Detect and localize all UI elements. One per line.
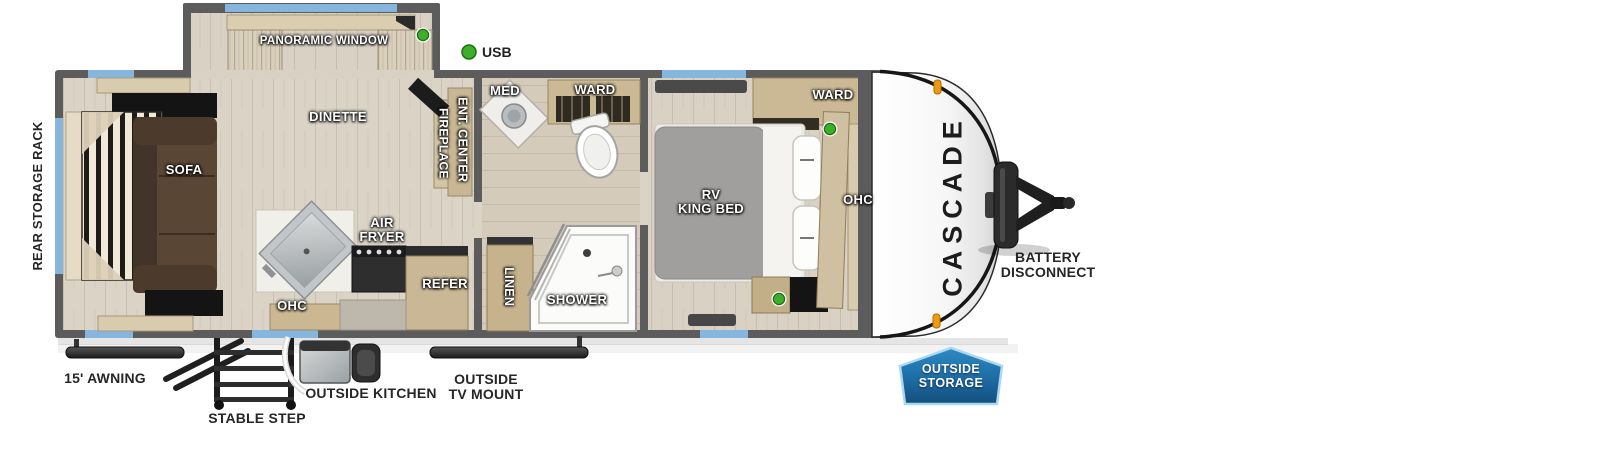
kitchen-ohc-cabinet bbox=[270, 304, 340, 330]
wall-living-bath bbox=[474, 78, 482, 202]
usb-legend-dot bbox=[462, 45, 476, 59]
marker-light bbox=[933, 314, 940, 328]
floorplan-canvas: PANORAMIC WINDOW DINETTE SOFA FIREPLACE … bbox=[0, 0, 1600, 451]
range bbox=[352, 246, 406, 292]
linen-cabinet bbox=[487, 245, 533, 331]
ent-center-cabinet bbox=[448, 88, 472, 196]
brand-logo: CASCADE bbox=[938, 101, 969, 311]
floorplan-graphic bbox=[0, 0, 1600, 451]
sofa bbox=[133, 117, 217, 293]
rv-king-bed bbox=[655, 124, 821, 282]
usb-legend-label: USB bbox=[482, 44, 512, 60]
usb-dot bbox=[823, 122, 838, 137]
outside-storage-badge bbox=[900, 348, 1002, 404]
usb-dot bbox=[772, 292, 787, 307]
refrigerator bbox=[406, 256, 468, 330]
usb-dot bbox=[416, 28, 431, 43]
marker-light bbox=[934, 80, 941, 94]
slideout-window bbox=[225, 4, 397, 12]
front-cap bbox=[858, 70, 1002, 338]
wall-bath-bedroom bbox=[640, 78, 648, 172]
